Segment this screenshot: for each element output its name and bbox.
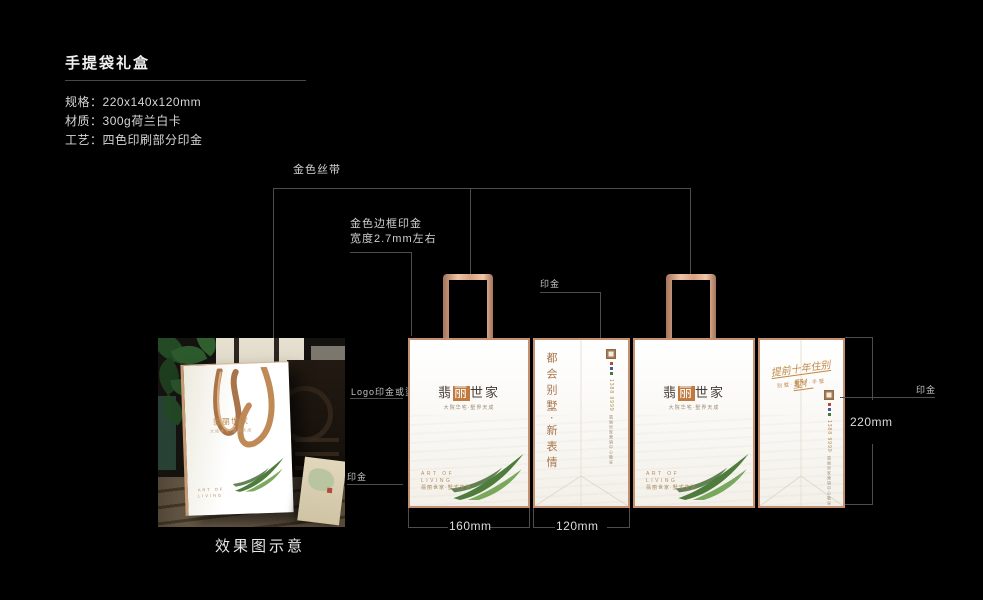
gold-ribbon-label: 金色丝带 [293,161,341,177]
title-divider [65,80,306,81]
front-footer-line2: LIVING [421,478,472,485]
bag-handle-front [443,274,493,338]
dieline-side-panel: 都会别墅·新表情 1388 9999 翡丽世家营销中心敬呈 [533,338,630,508]
side-panel-address: 翡丽世家营销中心敬呈 [608,415,614,465]
front-width-dimension: 160mm [449,519,492,533]
side-panel2-info-column: 1388 9999 翡丽世家营销中心敬呈 [824,390,834,506]
side-width-tick-right [629,508,630,527]
ribbon-leader-drop-handle2 [690,188,691,274]
side-panel-slogan: 都会别墅·新表情 [543,352,559,502]
gold-border-label-line1: 金色边框印金 [350,217,437,232]
photo-bag-footer-text: ART OF LIVING [198,486,225,499]
gold-border-label: 金色边框印金 宽度2.7mm左右 [350,217,437,247]
gold-border-leader-h [350,252,412,253]
spec-material-value: 300g荷兰白卡 [103,114,182,128]
bag-handle-back [666,274,716,338]
front-width-line-left [408,527,448,528]
back-footer-text: ART OF LIVING 翡丽世家·墅式生活 [646,471,697,492]
spec-material-label: 材质： [65,114,103,128]
bag-handle-front-opening [449,280,487,338]
spec-process-value: 四色印刷部分印金 [103,133,203,147]
gilding-top-leader-v [600,292,601,338]
photo-booklet [297,457,345,526]
front-width-tick-left [408,508,409,527]
photo-bag-footer-line2: LIVING [198,492,225,499]
back-footer-line3: 翡丽世家·墅式生活 [646,485,697,492]
photo-caption: 效果图示意 [215,535,305,556]
side-width-dimension: 120mm [556,519,599,533]
front-width-tick-right [529,508,530,527]
brand-tagline: 大院华宅·墅界天成 [635,404,753,411]
gilding-left-label: 印金 [347,470,367,483]
brand-tagline: 大院华宅·墅界天成 [410,404,528,411]
dieline-side-panel-2: 提前十年住别墅！ 别墅·叠墅·平墅 1388 9999 翡丽世家营销中心敬呈 [758,338,845,508]
side-width-line-right [607,527,630,528]
effect-photo: 翡丽世家 大院华宅·墅界天成 ART OF LIVING [158,338,345,527]
gilding-top-label: 印金 [540,277,560,290]
seal-logo [606,349,616,359]
logo-rest: 世家 [695,386,725,401]
spec-sheet: 手提袋礼盒 规格：220x140x120mm 材质：300g荷兰白卡 工艺：四色… [0,0,983,600]
height-dimension: 220mm [850,415,893,429]
front-footer-line1: ART OF [421,471,472,478]
info-mark-green [828,413,831,416]
info-mark-green [610,372,613,375]
ribbon-leader-line [273,188,690,189]
height-dim-tick-bottom [845,504,872,505]
gilding-left-leader [347,484,403,485]
ribbon-leader-drop-handle1 [470,188,471,274]
front-footer-line3: 翡丽世家·墅式生活 [421,485,472,492]
gilding-right-leader [840,397,935,398]
ribbon-leader-drop-photo [273,188,274,338]
front-logo-block: 翡丽世家 大院华宅·墅界天成 [410,382,528,411]
info-mark-blue [610,367,613,370]
height-dim-tick-top [845,337,872,338]
gilding-top-leader-h [540,292,601,293]
side-panel2-phone: 1388 9999 [826,420,832,453]
height-dim-line-top [872,337,873,400]
spec-size: 规格：220x140x120mm [65,93,201,110]
spec-process: 工艺：四色印刷部分印金 [65,131,203,148]
gilding-right-label: 印金 [916,383,936,396]
photo-gift-bag: 翡丽世家 大院华宅·墅界天成 ART OF LIVING [180,361,293,516]
back-logo-block: 翡丽世家 大院华宅·墅界天成 [635,382,753,411]
photo-cabinet-slat [295,438,339,442]
info-mark-red [828,403,831,406]
logo-char2: 丽 [678,386,695,401]
front-footer-text: ART OF LIVING 翡丽世家·墅式生活 [421,471,472,492]
brand-logo: 翡丽世家 [410,382,528,401]
spec-process-label: 工艺： [65,133,103,147]
logo-gilding-leader [350,398,403,399]
photo-cabinet-slat [295,452,339,456]
side-panel2-address: 翡丽世家营销中心敬呈 [826,456,832,506]
info-mark-blue [828,408,831,411]
gold-border-leader-v [411,252,412,336]
bag-handle-back-opening [672,280,710,338]
gold-border-label-line2: 宽度2.7mm左右 [350,232,437,247]
page-title: 手提袋礼盒 [65,52,150,73]
spec-size-label: 规格： [65,95,103,109]
side-width-tick-left [533,508,534,527]
back-footer-line2: LIVING [646,478,697,485]
logo-rest: 世家 [470,386,500,401]
side-panel-info-column: 1388 9999 翡丽世家营销中心敬呈 [606,349,616,465]
brand-logo: 翡丽世家 [635,382,753,401]
height-dim-line-bottom [872,444,873,505]
front-width-line-right [490,527,530,528]
side-width-line-left [533,527,555,528]
leaf-graphic [230,456,287,492]
spec-size-value: 220x140x120mm [103,95,202,109]
side-panel-phone: 1388 9999 [608,379,614,412]
back-footer-line1: ART OF [646,471,697,478]
dieline-back-panel: 翡丽世家 大院华宅·墅界天成 ART OF LIVING 翡丽世家·墅式生活 [633,338,755,508]
seal-logo [824,390,834,400]
booklet-seal [327,488,333,494]
logo-char1: 翡 [663,386,678,401]
spec-material: 材质：300g荷兰白卡 [65,112,181,129]
logo-char1: 翡 [438,386,453,401]
info-mark-red [610,362,613,365]
dieline-front-panel: 翡丽世家 大院华宅·墅界天成 ART OF LIVING 翡丽世家·墅式生活 [408,338,530,508]
logo-char2: 丽 [453,386,470,401]
